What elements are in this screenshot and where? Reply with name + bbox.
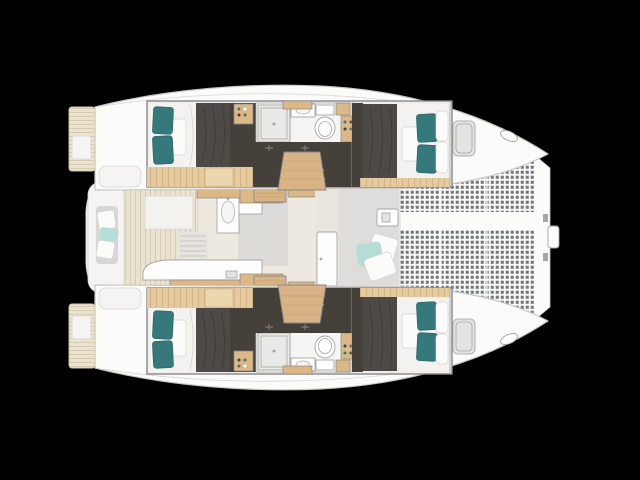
cockpit-pillow-white-1 bbox=[97, 210, 116, 230]
door-handle bbox=[320, 258, 323, 261]
bottle bbox=[238, 114, 241, 117]
bottle bbox=[244, 108, 247, 111]
bottle bbox=[238, 108, 241, 111]
cockpit-pillow-aqua bbox=[99, 227, 118, 242]
bow-fitting bbox=[548, 226, 559, 248]
forestay-chainplate-upper bbox=[543, 214, 548, 222]
toilet bbox=[315, 117, 335, 139]
galley-sink-basin bbox=[222, 201, 235, 223]
toiletry bbox=[344, 128, 347, 131]
starboard-swim-platform bbox=[69, 304, 95, 368]
white-pillow-2 bbox=[436, 142, 448, 173]
toiletry bbox=[344, 121, 347, 124]
white-pillow-1 bbox=[436, 111, 448, 141]
aft-cabin-duvet bbox=[196, 103, 232, 167]
teal-pillow-2 bbox=[152, 135, 173, 164]
folded-blanket bbox=[402, 127, 419, 161]
port-swim-platform bbox=[69, 107, 95, 171]
windlass-gypsy bbox=[382, 213, 390, 222]
floor-plan-canvas bbox=[0, 0, 640, 480]
toilet-tank bbox=[316, 105, 334, 115]
bed-step bbox=[205, 168, 233, 186]
teal-pillow-2 bbox=[416, 144, 437, 173]
forward-cabin bbox=[352, 101, 450, 187]
aft-cabin-floor bbox=[147, 167, 255, 187]
teal-pillow-1 bbox=[152, 106, 173, 134]
trampoline-center-walkway bbox=[399, 212, 534, 229]
saloon-table bbox=[145, 196, 193, 229]
galley-fixture bbox=[226, 271, 237, 278]
aft-cabin-shelf bbox=[234, 104, 253, 124]
forestay-chainplate-lower bbox=[543, 253, 548, 261]
bathroom-cabinet-corner bbox=[336, 103, 350, 115]
bathroom bbox=[256, 101, 357, 144]
cockpit-pillow-white-2 bbox=[96, 240, 116, 260]
teal-pillow-1 bbox=[416, 113, 437, 142]
forward-cabin-sole bbox=[352, 103, 363, 187]
transom-locker bbox=[99, 166, 141, 187]
swim-platform-step bbox=[72, 136, 91, 159]
companionway-steps bbox=[278, 152, 326, 190]
shower-drain bbox=[273, 123, 276, 126]
bathroom-cabinet-top bbox=[283, 101, 312, 109]
aft-cabin bbox=[147, 103, 257, 187]
bottle bbox=[244, 114, 247, 117]
forward-cabin-floor bbox=[360, 178, 450, 187]
catamaran-layout-plan bbox=[0, 0, 640, 480]
